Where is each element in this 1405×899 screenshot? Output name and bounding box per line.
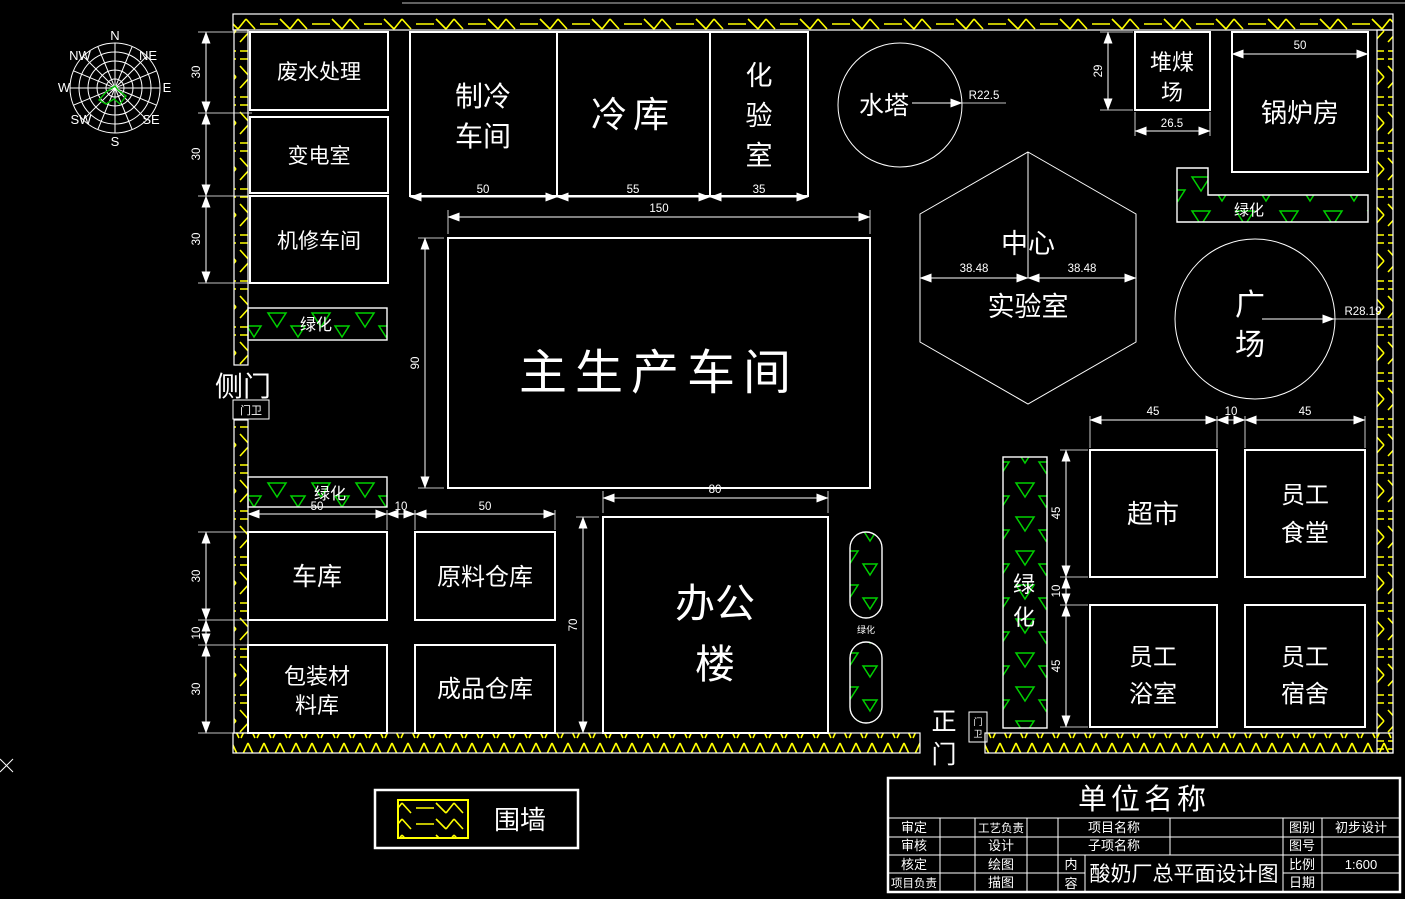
building-supermarket: 超市	[1090, 450, 1217, 577]
legend-wall-symbol	[398, 800, 468, 838]
wall-left-upper-segment	[234, 30, 248, 365]
dim-bathhouse-h: 45	[1051, 660, 1063, 673]
coal-yard-label-2: 场	[1161, 80, 1183, 105]
refrigeration-label-2: 车间	[455, 121, 511, 153]
compass-s-label: S	[111, 134, 120, 149]
building-test-lab: 化 验 室	[710, 32, 808, 196]
green-strip-vertical: 绿 化	[1003, 457, 1047, 728]
compass-sw-label: SW	[71, 112, 93, 127]
cold-storage-label: 冷库	[591, 95, 675, 135]
office-label-2: 楼	[695, 642, 735, 687]
green-strip-top-right: 绿化	[1177, 168, 1368, 222]
building-garage: 车库	[248, 532, 387, 620]
dim-market-w: 45	[1147, 406, 1160, 418]
flower-bed-label: 绿化	[857, 624, 875, 635]
dim-plaza-radius: R28.19	[1344, 306, 1381, 318]
tb-category-value: 初步设计	[1335, 820, 1387, 835]
test-lab-char-3: 室	[746, 141, 773, 171]
dim-boiler-w: 50	[1294, 40, 1307, 52]
refrigeration-label-1: 制冷	[455, 81, 511, 113]
tb-xiangmufuze: 项目负责	[891, 876, 937, 890]
wall-right	[1377, 30, 1393, 753]
main-gate: 正 门 门 卫	[931, 709, 987, 769]
main-gate-label-2: 门	[931, 741, 956, 769]
compass-nw-label: NW	[69, 48, 91, 63]
tb-tubie: 图别	[1289, 820, 1315, 835]
building-packaging-warehouse: 包装材 料库	[248, 645, 387, 733]
building-finished-warehouse: 成品仓库	[415, 645, 555, 733]
plaza-label-1: 广	[1235, 289, 1265, 322]
dim-market-h: 45	[1051, 507, 1063, 520]
central-lab-label-2: 实验室	[988, 292, 1069, 322]
dim-cold-w: 55	[627, 184, 640, 196]
dim-grid-gap-w: 10	[1225, 406, 1238, 418]
compass-rose: N NE E SE S SW W NW	[58, 28, 172, 149]
tb-sub-name: 子项名称	[1088, 838, 1140, 853]
building-refrigeration-workshop: 制冷 车间	[410, 32, 557, 196]
tb-heding: 核定	[901, 857, 927, 872]
finished-warehouse-label: 成品仓库	[437, 676, 533, 703]
compass-se-label: SE	[142, 112, 160, 127]
dim-grid-gap-h: 10	[1051, 585, 1063, 598]
flower-bed-lower	[850, 642, 882, 723]
green-vertical-label-1: 绿	[1013, 572, 1035, 597]
building-canteen: 员工 食堂	[1245, 450, 1365, 577]
office-label-1: 办公	[675, 581, 755, 626]
dim-gap-a: 10	[395, 501, 408, 513]
building-repair-workshop: 机修车间	[250, 196, 388, 283]
legend-wall-label: 围墙	[494, 806, 546, 835]
building-coal-yard: 堆煤 场 29 26.5	[1093, 32, 1210, 136]
green-strip-upper-label: 绿化	[300, 316, 332, 334]
wall-bottom-right-segment	[985, 733, 1393, 753]
water-tower-label: 水塔	[859, 92, 909, 120]
test-lab-char-2: 验	[746, 101, 773, 131]
dim-hex-right: 38.48	[1068, 263, 1097, 275]
tb-content-label-2: 容	[1064, 876, 1077, 891]
test-lab-char-1: 化	[746, 61, 773, 91]
dim-30-1: 30	[191, 66, 203, 79]
tb-content-label-1: 内	[1064, 857, 1077, 872]
plaza-area: 广 场 R28.19	[1175, 239, 1392, 399]
wall-left-lower-segment	[234, 420, 248, 733]
central-lab-label-1: 中心	[1001, 229, 1055, 259]
building-substation: 变电室	[250, 117, 388, 193]
building-boiler-house: 50 锅炉房	[1232, 32, 1368, 172]
compass-ne-label: NE	[139, 48, 157, 63]
dim-coal-w: 26.5	[1161, 118, 1183, 130]
building-water-tower: 水塔 R22.5	[838, 43, 1006, 167]
tb-gongyifuze: 工艺负责	[978, 821, 1024, 835]
bathhouse-label-1: 员工	[1129, 645, 1177, 671]
dim-garage-h: 30	[191, 570, 203, 583]
tb-project-name: 项目名称	[1088, 820, 1140, 835]
title-block: 单位名称 审定 审核 核定 项目负责 工艺负责 设计 绘图 描图 项目名称 子项…	[888, 778, 1400, 892]
wall-top	[233, 14, 1393, 30]
dim-grid-left: 45 10 45	[1051, 450, 1088, 727]
dim-tower-radius: R22.5	[969, 90, 1000, 102]
compass-e-label: E	[163, 80, 172, 95]
flower-bed-upper	[850, 532, 882, 618]
tb-shending: 审定	[901, 820, 927, 835]
green-strip-upper: 绿化	[248, 308, 387, 340]
substation-label: 变电室	[288, 144, 351, 168]
main-gate-guard-label-2: 卫	[973, 729, 982, 739]
raw-warehouse-label: 原料仓库	[437, 564, 533, 591]
dim-raw-w: 50	[479, 501, 492, 513]
supermarket-label: 超市	[1127, 500, 1179, 529]
dormitory-label-1: 员工	[1281, 645, 1329, 671]
tb-shenhe: 审核	[901, 838, 927, 853]
dim-garage-w: 50	[311, 501, 324, 513]
drawing-title: 酸奶厂总平面设计图	[1090, 862, 1279, 886]
building-central-lab: 中心 实验室 38.48 38.48	[920, 152, 1136, 404]
compass-w-label: W	[58, 80, 71, 95]
tb-scale-value: 1:600	[1345, 857, 1378, 872]
crosshair-cursor	[0, 759, 13, 772]
canteen-label-2: 食堂	[1281, 520, 1329, 547]
cad-plant-layout-drawing: N NE E SE S SW W NW 废水处理 变电室 机修车间 30 30 …	[0, 0, 1405, 899]
tb-huitu: 绘图	[988, 857, 1014, 872]
canteen-label-1: 员工	[1281, 483, 1329, 509]
side-gate-label: 侧门	[215, 371, 271, 403]
dim-lab-w: 35	[753, 184, 766, 196]
main-workshop-label: 主生产车间	[519, 347, 799, 400]
bathhouse-label-2: 浴室	[1129, 681, 1177, 708]
dim-canteen-w: 45	[1299, 406, 1312, 418]
building-wastewater: 废水处理	[250, 32, 388, 110]
dim-main-h: 90	[410, 357, 422, 370]
dim-packaging-h: 30	[191, 683, 203, 696]
dim-office-h: 70	[568, 619, 580, 632]
tb-riqi: 日期	[1289, 875, 1315, 890]
main-gate-label-1: 正	[931, 709, 956, 736]
main-gate-guard-label-1: 门	[973, 716, 982, 727]
building-dormitory: 员工 宿舍	[1245, 605, 1365, 727]
coal-yard-label-1: 堆煤	[1150, 50, 1194, 75]
building-bathhouse: 员工 浴室	[1090, 605, 1217, 727]
tb-sheji: 设计	[988, 838, 1014, 853]
repair-label: 机修车间	[277, 229, 361, 253]
company-name: 单位名称	[1078, 783, 1210, 816]
dim-coal-h: 29	[1093, 65, 1105, 78]
tb-bili: 比例	[1289, 857, 1315, 872]
plaza-label-2: 场	[1235, 329, 1265, 362]
green-vertical-label-2: 化	[1013, 605, 1035, 630]
wall-bottom-left-segment	[233, 733, 920, 753]
building-main-workshop: 主生产车间 150 90	[410, 203, 870, 488]
dim-refrig-w: 50	[477, 184, 490, 196]
drawing-surface: N NE E SE S SW W NW 废水处理 变电室 机修车间 30 30 …	[0, 0, 1405, 899]
dim-30-3: 30	[191, 233, 203, 246]
dim-hex-left: 38.48	[960, 263, 989, 275]
perimeter-wall	[233, 14, 1393, 753]
tb-tuhao: 图号	[1289, 838, 1315, 853]
side-gate: 侧门 门卫	[215, 371, 271, 419]
dormitory-label-2: 宿舍	[1281, 681, 1329, 708]
boiler-label: 锅炉房	[1261, 99, 1339, 128]
compass-n-label: N	[110, 28, 119, 43]
tb-miaotu: 描图	[988, 875, 1014, 890]
garage-label: 车库	[292, 563, 342, 591]
dim-grid-top: 45 10 45	[1090, 406, 1365, 448]
side-gate-guard-label: 门卫	[240, 403, 262, 417]
dim-30-2: 30	[191, 148, 203, 161]
building-office: 办公 楼 80 70	[568, 484, 828, 733]
legend: 围墙	[375, 790, 578, 848]
building-raw-warehouse: 原料仓库	[415, 532, 555, 620]
dim-gap-b: 10	[191, 627, 203, 640]
building-cold-storage: 冷库	[557, 32, 710, 196]
wastewater-label: 废水处理	[277, 60, 361, 84]
packaging-label-1: 包装材	[284, 664, 350, 689]
dim-main-w: 150	[649, 203, 668, 215]
packaging-label-2: 料库	[295, 693, 339, 718]
dim-office-w: 80	[709, 484, 722, 496]
green-strip-tr-label: 绿化	[1234, 202, 1264, 219]
